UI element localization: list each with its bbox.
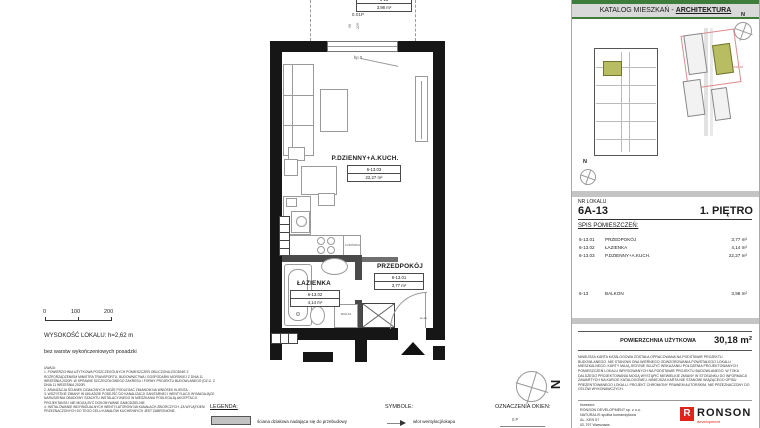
header-bold: ARCHITEKTURA xyxy=(676,7,732,14)
scale-tick-0: 0 xyxy=(43,309,46,315)
room-bath-tag: 6-13.02 4,14 m² xyxy=(290,290,340,307)
key-plan xyxy=(594,48,658,156)
north-letter-rotated: N xyxy=(548,380,563,389)
site-compass-letter: N xyxy=(741,12,745,18)
total-line-bottom xyxy=(578,350,752,351)
window-tag: 0.01P xyxy=(341,13,375,18)
north-compass xyxy=(516,371,547,402)
room-main-tag: 6-13.03 22,27 m² xyxy=(347,165,401,182)
investor-block: Inwestor: RONSON DEVELOPMENT sp. z o.o. … xyxy=(580,403,641,428)
room-hall-name: PRZEDPOKÓJ xyxy=(365,263,435,270)
scale-tick-100: 100 xyxy=(71,309,80,315)
windows-key-line xyxy=(500,426,545,427)
row-area: 3,77 m² xyxy=(717,237,747,242)
wall-stub-right-below xyxy=(433,346,445,360)
ronson-logo-mark: R xyxy=(680,407,694,421)
fridge-label: LODÓWKA xyxy=(344,243,361,247)
row-name: P.DZIENNY+A.KUCH. xyxy=(605,253,717,258)
stove-burner-3 xyxy=(317,246,325,254)
tick-cell xyxy=(280,225,289,233)
row-area: 22,27 m² xyxy=(717,253,747,258)
threshold-boxes xyxy=(271,333,298,344)
panel-green-line xyxy=(572,17,759,19)
balcony-schedule-row: 6-13 BALKON 3,98 m² xyxy=(579,291,747,296)
partition-corner xyxy=(355,255,362,280)
tv-board-line xyxy=(421,81,422,139)
entrance-door-arc xyxy=(390,292,427,329)
site-etap-label: ETAP 6A xyxy=(732,65,743,69)
legend-swatch xyxy=(211,416,251,425)
total-label: POWIERZCHNIA UŻYTKOWA xyxy=(620,338,696,344)
height-note: WYSOKOŚĆ LOKALU: h=2,62 m xyxy=(44,333,133,339)
partition-hall-top xyxy=(362,257,398,262)
investor-divider xyxy=(578,400,752,401)
door-note: el+tel xyxy=(405,316,427,320)
stove-burner-2 xyxy=(327,237,335,245)
height-subnote: bez warstw wykończeniowych posadzki xyxy=(44,349,137,355)
kitchen-small-appliance xyxy=(286,198,297,207)
room-schedule-row: 6-13.03 P.DZIENNY+A.KUCH. 22,27 m² xyxy=(579,253,747,258)
room-hall-code: 6-13.01 xyxy=(375,274,423,282)
wall-bottom-right xyxy=(426,328,445,340)
room-schedule-row: 6-13.01 PRZEDPOKÓJ 3,77 m² xyxy=(579,237,747,242)
sofa xyxy=(283,64,314,156)
kitchen-sink-bowl xyxy=(296,216,307,227)
room-schedule-row: 6-13.02 ŁAZIENKA 4,14 m² xyxy=(579,245,747,250)
site-compass xyxy=(734,22,752,40)
toilet-bowl xyxy=(310,306,325,325)
balcony-tag: 6-13 3,98 m² xyxy=(356,0,412,12)
bathtub-drain xyxy=(296,312,300,316)
balcony-tag-area: 3,98 m² xyxy=(357,4,411,11)
panel-gray-band xyxy=(572,191,759,197)
sofa-cushion-line-2 xyxy=(284,125,313,126)
row-code: 6-13.01 xyxy=(579,237,605,242)
disclaimer-text: NINIEJSZA KARTA KATALOGOWA ZOSTAŁA OPRAC… xyxy=(578,355,752,392)
vent-symbol-line xyxy=(387,423,400,424)
unit-underline xyxy=(578,219,752,220)
unit-number: 6A-13 xyxy=(578,205,608,217)
dining-chair-3 xyxy=(318,193,335,206)
stove-burner-4 xyxy=(327,246,335,254)
vent-symbol-arrow xyxy=(400,420,406,426)
wall-stub-bottom-b xyxy=(355,340,367,362)
floor-plan: 6-13 3,98 m² 0.01P 98 229 hp 0 xyxy=(255,0,470,362)
dining-table xyxy=(301,166,337,195)
key-room-line xyxy=(596,121,656,122)
sill-note: hp 0 xyxy=(345,55,371,60)
room-bath-area: 4,14 m² xyxy=(291,299,339,306)
scale-tick-200: 200 xyxy=(104,309,113,315)
legend-title: LEGENDA: xyxy=(210,404,238,410)
entrance-door-leaf xyxy=(425,292,426,328)
key-compass xyxy=(580,169,596,185)
room-main-area: 22,27 m² xyxy=(348,174,400,181)
row-name: PRZEDPOKÓJ xyxy=(605,237,717,242)
tick-cell xyxy=(280,233,289,241)
room-hall-area: 3,77 m² xyxy=(375,282,423,289)
key-room-line xyxy=(596,139,656,140)
row-area: 3,98 m² xyxy=(717,291,747,296)
washbasin xyxy=(321,258,348,275)
row-code: 6-13.02 xyxy=(579,245,605,250)
sofa-cushion-line-1 xyxy=(284,95,313,96)
coffee-table xyxy=(320,89,348,132)
row-code: 6-13 xyxy=(579,291,605,296)
unit-floor: 1. PIĘTRO xyxy=(700,205,753,217)
room-main-code: 6-13.03 xyxy=(348,166,400,174)
panel-header-band: KATALOG MIESZKAŃ - ARCHITEKTURA xyxy=(572,4,759,17)
tick-cell xyxy=(280,217,289,225)
threshold-cell xyxy=(281,334,290,343)
washing-machine xyxy=(334,304,358,328)
key-room-line xyxy=(596,85,656,86)
ronson-logo: R RONSON development xyxy=(680,407,751,424)
spis-title: SPIS POMIESZCZEŃ: xyxy=(578,223,638,229)
partition-bath-top xyxy=(282,255,362,262)
dining-chair-2 xyxy=(284,159,298,176)
info-panel: KATALOG MIESZKAŃ - ARCHITEKTURA N xyxy=(571,0,760,428)
room-bath-code: 6-13.02 xyxy=(291,291,339,299)
header-prefix: KATALOG MIESZKAŃ - xyxy=(600,7,676,14)
window-dim-a: 98 xyxy=(348,24,352,28)
total-row: POWIERZCHNIA UŻYTKOWA 30,18 m² xyxy=(578,332,752,349)
room-hall-tag: 6-13.01 3,77 m² xyxy=(374,273,424,290)
balcony-dashed-right xyxy=(415,0,416,41)
threshold-cell xyxy=(289,334,297,343)
wall-stub-bottom-a xyxy=(303,352,333,362)
panel-gray-band xyxy=(572,318,759,324)
north-letter: N xyxy=(548,380,563,389)
scale-bar-tick xyxy=(45,317,46,321)
windows-key-item: 0.P xyxy=(512,417,518,422)
wall-right xyxy=(433,41,445,340)
entrance-arrow xyxy=(401,342,425,355)
threshold-cell xyxy=(272,334,281,343)
scale-bar-tick xyxy=(111,317,112,321)
site-plan: ETAP 6A xyxy=(682,26,758,142)
room-bath-name: ŁAZIENKA xyxy=(283,280,345,287)
stove-burner-1 xyxy=(317,237,325,245)
symbols-item: wlot wentylacji/okapu xyxy=(413,419,455,424)
windows-key-title: OZNACZENIA OKIEN: xyxy=(495,404,550,410)
balcony-window-mullion xyxy=(328,46,397,47)
balcony-dashed-left xyxy=(310,0,311,41)
washer-label: PRALKA xyxy=(335,313,357,316)
row-name: BALKON xyxy=(605,291,717,296)
row-name: ŁAZIENKA xyxy=(605,245,717,250)
tv-board xyxy=(415,76,428,142)
row-code: 6-13.03 xyxy=(579,253,605,258)
window-dim-b: 229 xyxy=(356,23,360,29)
key-compass-letter: N xyxy=(583,159,587,165)
scale-bar-tick xyxy=(78,317,79,321)
ronson-logo-tagline: development xyxy=(697,419,751,424)
legend-item: ściana działowa nadająca się do przebudo… xyxy=(257,419,347,424)
wall-tick-strip xyxy=(279,216,290,256)
room-main-name: P.DZIENNY+A.KUCH. xyxy=(313,155,417,162)
total-value: 30,18 m² xyxy=(714,335,752,346)
sofa-back-line xyxy=(292,65,293,155)
site-building-4 xyxy=(711,87,731,121)
key-room-line xyxy=(596,103,656,104)
investor-line: 02-797 Warszawa xyxy=(580,423,641,428)
uwagi-notes: UWAGI: 1. POWIERZCHNIA UŻYTKOWA POSZCZEG… xyxy=(44,366,216,414)
tick-cell xyxy=(280,241,289,249)
ronson-logo-text: RONSON xyxy=(697,407,751,419)
catalog-sheet: 6-13 3,98 m² 0.01P 98 229 hp 0 xyxy=(0,0,760,428)
row-area: 4,14 m² xyxy=(717,245,747,250)
wall-left xyxy=(270,41,282,340)
key-plan-highlighted-unit xyxy=(603,61,622,76)
symbols-title: SYMBOLE: xyxy=(385,404,413,410)
